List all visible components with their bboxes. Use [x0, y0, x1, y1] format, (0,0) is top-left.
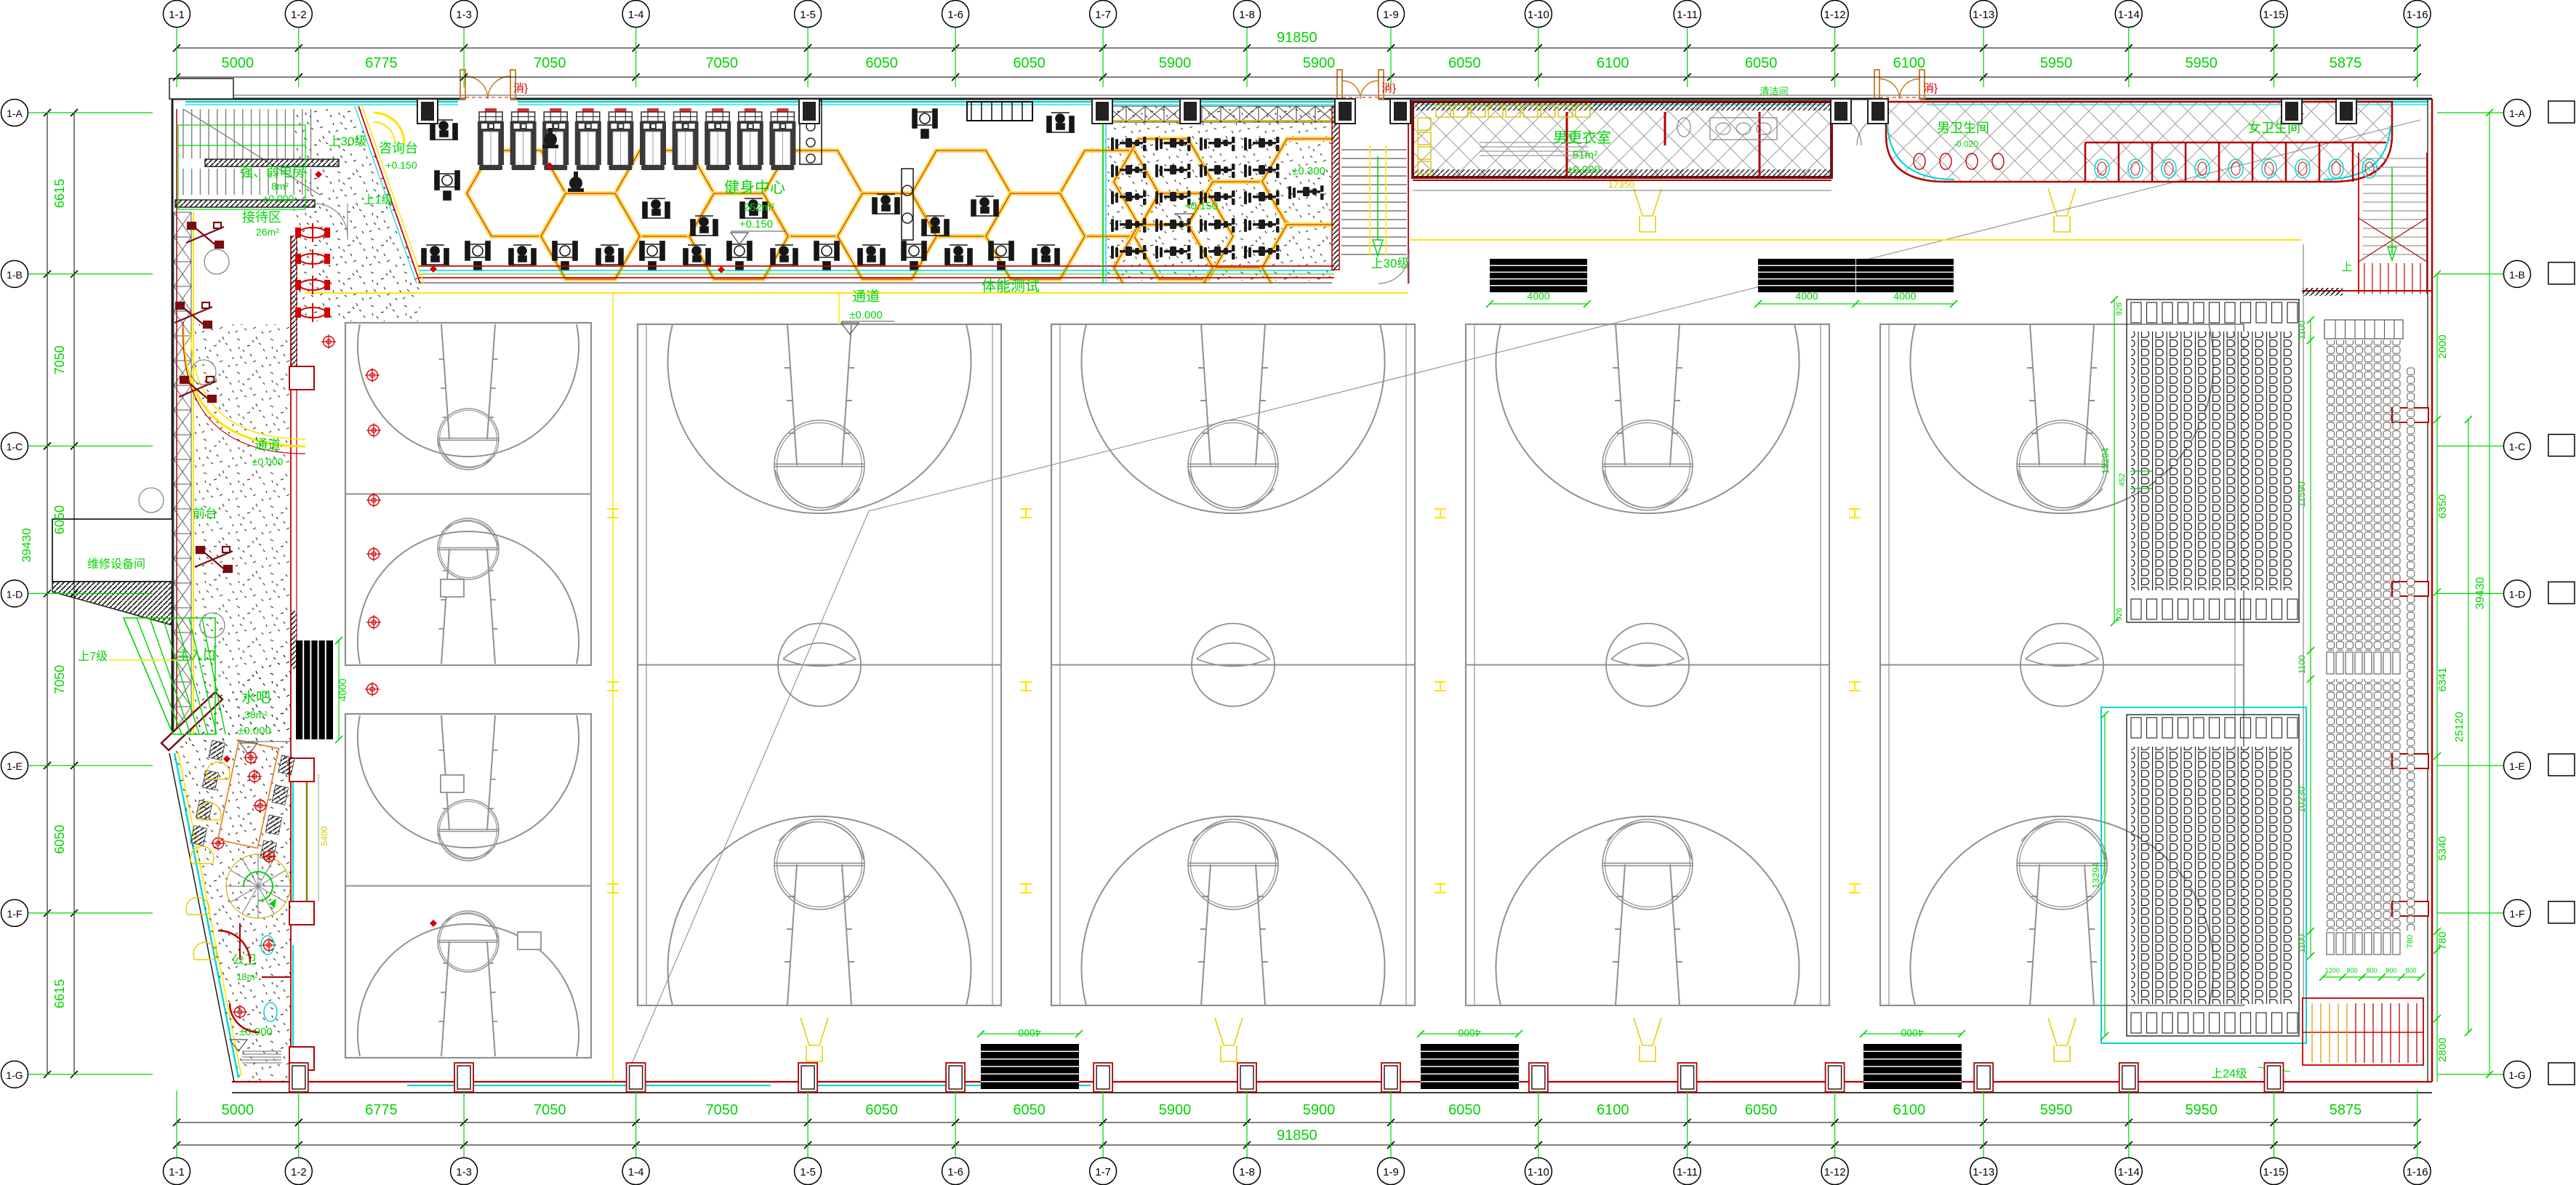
svg-text:1-E: 1-E — [7, 760, 23, 772]
svg-text:800: 800 — [2366, 967, 2377, 974]
svg-text:17350: 17350 — [1608, 179, 1634, 190]
svg-text:1-4: 1-4 — [628, 9, 644, 21]
svg-text:+0.150: +0.150 — [385, 159, 417, 171]
svg-text:6050: 6050 — [1448, 1102, 1481, 1118]
svg-text:1-10: 1-10 — [1528, 9, 1549, 21]
svg-text:水吧: 水吧 — [241, 689, 270, 706]
svg-text:1-D: 1-D — [7, 588, 23, 600]
svg-text:1-F: 1-F — [2510, 908, 2525, 920]
svg-text:6100: 6100 — [1893, 55, 1926, 71]
svg-text:+0.150: +0.150 — [1184, 200, 1218, 212]
svg-text:5875: 5875 — [2330, 1102, 2362, 1118]
svg-text:5900: 5900 — [1159, 55, 1192, 71]
svg-text:主入口: 主入口 — [177, 648, 216, 663]
svg-text:±0.000: ±0.000 — [1567, 164, 1600, 176]
svg-text:11590: 11590 — [2296, 481, 2307, 507]
svg-text:体能测试: 体能测试 — [982, 278, 1040, 294]
svg-text:上7级: 上7级 — [78, 650, 108, 663]
svg-text:男卫生间: 男卫生间 — [1937, 121, 1989, 135]
svg-text:±0.000: ±0.000 — [252, 456, 284, 467]
svg-text:252m²: 252m² — [744, 201, 775, 214]
svg-text:7050: 7050 — [52, 345, 67, 374]
svg-text:通道: 通道 — [254, 438, 281, 452]
svg-text:5400: 5400 — [319, 826, 329, 845]
svg-text:6350: 6350 — [2436, 494, 2449, 518]
svg-text:4000: 4000 — [337, 678, 348, 701]
svg-text:±0.000: ±0.000 — [263, 193, 294, 204]
svg-text:1-B: 1-B — [2509, 269, 2525, 281]
svg-text:780: 780 — [2436, 931, 2449, 949]
svg-text:公卫: 公卫 — [232, 953, 257, 967]
svg-text:1-15: 1-15 — [2263, 1166, 2284, 1178]
svg-text:强、弱电房: 强、弱电房 — [240, 165, 305, 180]
svg-text:1200: 1200 — [2325, 967, 2340, 974]
svg-text:6775: 6775 — [365, 1102, 398, 1118]
svg-text:8m²: 8m² — [271, 180, 289, 192]
svg-text:通道: 通道 — [852, 289, 880, 305]
svg-text:4000: 4000 — [1795, 290, 1818, 302]
svg-text:7050: 7050 — [706, 55, 739, 71]
svg-text:6100: 6100 — [1597, 55, 1629, 71]
svg-text:780: 780 — [2406, 935, 2415, 948]
svg-text:1100: 1100 — [2297, 934, 2307, 953]
svg-text:1-11: 1-11 — [1677, 9, 1698, 21]
svg-text:13294: 13294 — [2090, 862, 2101, 888]
svg-text:1-B: 1-B — [7, 269, 23, 281]
svg-text:+0.150: +0.150 — [739, 218, 773, 230]
svg-text:91850: 91850 — [1277, 30, 1317, 46]
svg-text:5950: 5950 — [2040, 1102, 2073, 1118]
svg-text:1100: 1100 — [2297, 655, 2307, 674]
svg-text:1-G: 1-G — [2508, 1069, 2525, 1081]
svg-text:7050: 7050 — [52, 665, 67, 694]
svg-text:1-2: 1-2 — [291, 9, 307, 21]
svg-text:1-C: 1-C — [7, 441, 23, 453]
svg-text:5900: 5900 — [1159, 1102, 1192, 1118]
svg-text:39430: 39430 — [20, 528, 33, 562]
svg-text:男更衣室: 男更衣室 — [1553, 129, 1611, 146]
svg-text:上24级: 上24级 — [2211, 1067, 2247, 1080]
svg-text:6050: 6050 — [1745, 55, 1778, 71]
svg-text:6615: 6615 — [52, 979, 67, 1008]
svg-text:26m²: 26m² — [256, 226, 279, 238]
svg-text:6775: 6775 — [365, 55, 398, 71]
svg-text:1-5: 1-5 — [800, 1166, 816, 1178]
svg-text:1-10: 1-10 — [1528, 1166, 1549, 1178]
svg-text:4000: 4000 — [1018, 1027, 1040, 1039]
svg-text:1-13: 1-13 — [1973, 1166, 1994, 1178]
svg-text:6050: 6050 — [1745, 1102, 1778, 1118]
svg-text:6615: 6615 — [52, 179, 67, 208]
svg-text:-0.020: -0.020 — [1954, 139, 1978, 149]
svg-text:±0.000: ±0.000 — [238, 725, 271, 737]
svg-text:1-6: 1-6 — [947, 1166, 963, 1178]
svg-text:4000: 4000 — [1458, 1027, 1480, 1039]
svg-text:5900: 5900 — [1303, 1102, 1336, 1118]
svg-text:咨询台: 咨询台 — [379, 141, 418, 156]
svg-text:消}: 消} — [1381, 82, 1396, 95]
svg-text:4000: 4000 — [1893, 290, 1916, 302]
svg-text:前台: 前台 — [193, 507, 217, 521]
svg-text:7050: 7050 — [534, 1102, 566, 1118]
svg-text:维修设备间: 维修设备间 — [87, 558, 145, 571]
svg-text:1-14: 1-14 — [2118, 9, 2140, 21]
svg-text:清洁间: 清洁间 — [1760, 86, 1788, 97]
svg-text:51m²: 51m² — [1573, 149, 1597, 161]
svg-text:91850: 91850 — [1277, 1128, 1317, 1144]
svg-text:926: 926 — [2115, 608, 2124, 621]
svg-text:1-1: 1-1 — [169, 1166, 185, 1178]
svg-text:1-6: 1-6 — [947, 9, 963, 21]
svg-text:±0.000: ±0.000 — [849, 309, 883, 321]
svg-text:1-9: 1-9 — [1383, 1166, 1399, 1178]
svg-text:800: 800 — [2346, 967, 2357, 974]
svg-text:消}: 消} — [513, 82, 528, 95]
svg-text:6050: 6050 — [1013, 55, 1046, 71]
svg-text:6050: 6050 — [52, 824, 67, 853]
svg-text:18m²: 18m² — [236, 971, 258, 982]
svg-text:1-1: 1-1 — [169, 9, 185, 21]
svg-text:452: 452 — [2118, 473, 2127, 486]
svg-text:1-D: 1-D — [2509, 588, 2526, 600]
svg-text:5950: 5950 — [2185, 55, 2218, 71]
svg-text:7050: 7050 — [706, 1102, 739, 1118]
svg-text:6050: 6050 — [865, 1102, 898, 1118]
svg-text:10230: 10230 — [2296, 787, 2307, 813]
svg-text:6050: 6050 — [52, 505, 67, 534]
svg-text:39430: 39430 — [2474, 577, 2487, 610]
svg-text:2000: 2000 — [2436, 334, 2449, 358]
svg-text:25120: 25120 — [2453, 712, 2465, 742]
svg-text:6100: 6100 — [1893, 1102, 1926, 1118]
svg-text:1-7: 1-7 — [1095, 9, 1111, 21]
svg-text:1-7: 1-7 — [1095, 1166, 1111, 1178]
svg-text:1-2: 1-2 — [291, 1166, 307, 1178]
svg-text:1-E: 1-E — [2509, 760, 2525, 772]
svg-text:800: 800 — [2386, 967, 2396, 974]
svg-text:5875: 5875 — [2330, 55, 2362, 71]
svg-text:1-F: 1-F — [7, 908, 23, 920]
svg-text:6050: 6050 — [865, 55, 898, 71]
svg-text:1-3: 1-3 — [456, 9, 472, 21]
svg-text:1-13: 1-13 — [1973, 9, 1994, 21]
svg-text:1-9: 1-9 — [1383, 9, 1399, 21]
svg-text:4000: 4000 — [1901, 1027, 1923, 1039]
svg-text:2800: 2800 — [2436, 1037, 2449, 1061]
svg-text:5950: 5950 — [2040, 55, 2073, 71]
svg-text:4000: 4000 — [1527, 290, 1549, 302]
svg-text:健身中心: 健身中心 — [724, 180, 785, 196]
svg-text:1-4: 1-4 — [628, 1166, 644, 1178]
svg-text:上1级: 上1级 — [364, 193, 393, 206]
svg-text:接待区: 接待区 — [242, 210, 281, 225]
svg-text:1-8: 1-8 — [1239, 1166, 1255, 1178]
svg-text:6050: 6050 — [1448, 55, 1481, 71]
svg-text:1100: 1100 — [2297, 321, 2307, 340]
svg-text:1-12: 1-12 — [1824, 9, 1846, 21]
svg-text:1-A: 1-A — [2509, 108, 2525, 119]
svg-text:1-C: 1-C — [2509, 441, 2526, 453]
svg-text:上30级: 上30级 — [1371, 257, 1410, 270]
svg-text:926: 926 — [2115, 302, 2124, 316]
svg-text:1-11: 1-11 — [1677, 1166, 1698, 1178]
svg-text:38m²: 38m² — [244, 709, 268, 720]
svg-text:1-G: 1-G — [6, 1069, 23, 1081]
svg-text:13294: 13294 — [2100, 448, 2111, 474]
svg-text:上: 上 — [2341, 261, 2352, 273]
svg-text:1-12: 1-12 — [1824, 1166, 1846, 1178]
svg-text:1-A: 1-A — [7, 108, 23, 119]
svg-text:6100: 6100 — [1597, 1102, 1629, 1118]
svg-text:上30级: 上30级 — [329, 134, 367, 148]
svg-text:800: 800 — [2405, 967, 2416, 974]
svg-text:5340: 5340 — [2436, 836, 2449, 860]
svg-text:1-5: 1-5 — [800, 9, 816, 21]
svg-text:5000: 5000 — [222, 1102, 254, 1118]
svg-text:1-8: 1-8 — [1239, 9, 1255, 21]
svg-text:6341: 6341 — [2436, 667, 2449, 691]
svg-text:5900: 5900 — [1303, 55, 1336, 71]
svg-text:5950: 5950 — [2185, 1102, 2218, 1118]
svg-text:1-3: 1-3 — [456, 1166, 472, 1178]
svg-text:±0.300: ±0.300 — [1292, 165, 1325, 177]
svg-text:消}: 消} — [1923, 82, 1938, 95]
svg-text:1-14: 1-14 — [2118, 1166, 2140, 1178]
svg-text:7050: 7050 — [534, 55, 566, 71]
svg-text:5000: 5000 — [222, 55, 254, 71]
svg-text:1-15: 1-15 — [2263, 9, 2284, 21]
svg-text:1-16: 1-16 — [2407, 1166, 2428, 1178]
svg-text:6050: 6050 — [1013, 1102, 1046, 1118]
svg-text:1-16: 1-16 — [2407, 9, 2428, 21]
